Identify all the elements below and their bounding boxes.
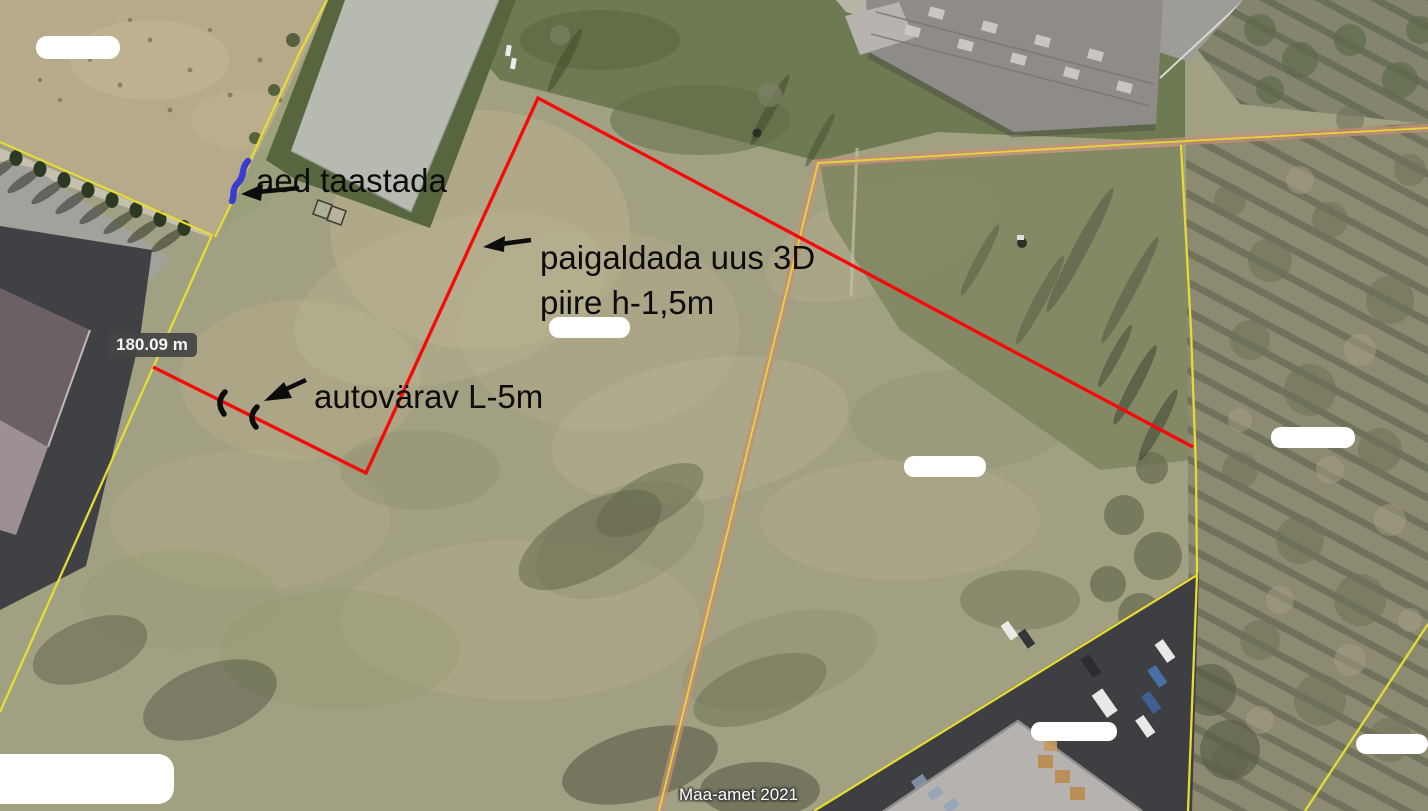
redaction-box [904, 456, 986, 477]
measurement-label: 180.09 m [107, 333, 197, 357]
redaction-box [1356, 734, 1428, 754]
map-attribution: Maa-amet 2021 [679, 785, 798, 805]
aerial-map-canvas: 180.09 m aed taastada paigaldada uus 3D … [0, 0, 1428, 811]
light-object [1017, 235, 1024, 240]
annotation-gate: autovärav L-5m [314, 377, 543, 417]
redaction-box [1271, 427, 1355, 448]
annotation-new-fence-line2: piire h-1,5m [540, 283, 714, 323]
redaction-box [1031, 722, 1117, 741]
annotation-new-fence-line1: paigaldada uus 3D [540, 238, 815, 278]
aerial-basemap [0, 0, 1428, 811]
annotation-fence-restore: aed taastada [256, 161, 447, 201]
dark-object [753, 129, 762, 138]
redaction-box [0, 754, 174, 804]
redaction-box [36, 36, 120, 59]
